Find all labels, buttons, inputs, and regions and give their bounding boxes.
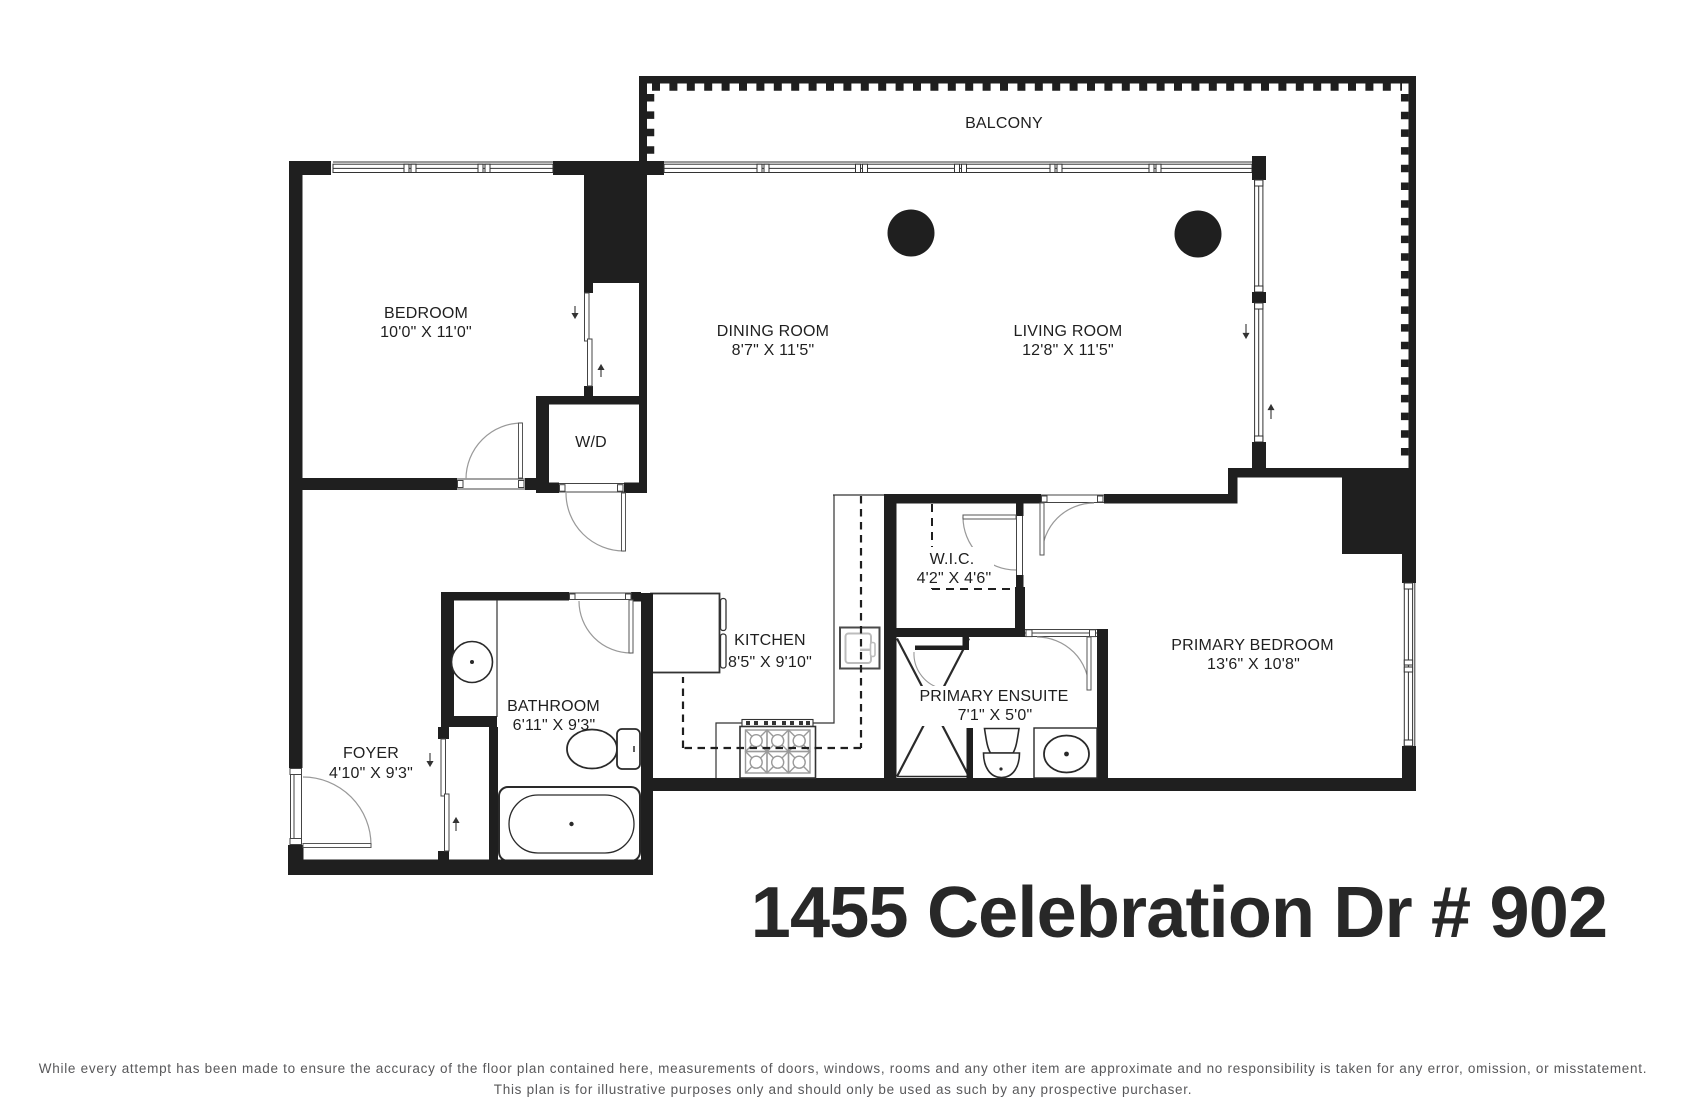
svg-text:8'5" X 9'10": 8'5" X 9'10": [728, 654, 812, 671]
svg-text:13'6" X 10'8": 13'6" X 10'8": [1207, 656, 1300, 673]
svg-text:KITCHEN: KITCHEN: [734, 632, 806, 649]
svg-text:12'8" X 11'5": 12'8" X 11'5": [1022, 342, 1114, 359]
svg-text:W/D: W/D: [575, 434, 607, 451]
svg-text:BATHROOM: BATHROOM: [507, 698, 600, 715]
svg-text:4'10" X 9'3": 4'10" X 9'3": [329, 765, 413, 782]
svg-text:1455 Celebration Dr # 902: 1455 Celebration Dr # 902: [751, 873, 1607, 953]
svg-text:BALCONY: BALCONY: [965, 115, 1043, 132]
svg-text:LIVING ROOM: LIVING ROOM: [1014, 323, 1123, 340]
svg-text:4'2" X 4'6": 4'2" X 4'6": [917, 570, 992, 587]
svg-text:6'11" X 9'3": 6'11" X 9'3": [513, 717, 596, 734]
svg-text:8'7" X 11'5": 8'7" X 11'5": [732, 342, 815, 359]
svg-text:10'0" X 11'0": 10'0" X 11'0": [380, 324, 472, 341]
svg-text:BEDROOM: BEDROOM: [384, 305, 468, 322]
svg-text:PRIMARY BEDROOM: PRIMARY BEDROOM: [1171, 637, 1333, 654]
svg-text:FOYER: FOYER: [343, 745, 399, 762]
svg-text:While every attempt has been m: While every attempt has been made to ens…: [39, 1061, 1647, 1076]
svg-text:This plan is for illustrative: This plan is for illustrative purposes o…: [494, 1082, 1192, 1097]
svg-text:PRIMARY ENSUITE: PRIMARY ENSUITE: [919, 688, 1068, 705]
svg-text:W.I.C.: W.I.C.: [930, 551, 975, 568]
svg-text:DINING ROOM: DINING ROOM: [717, 323, 829, 340]
svg-text:7'1" X 5'0": 7'1" X 5'0": [958, 707, 1033, 724]
